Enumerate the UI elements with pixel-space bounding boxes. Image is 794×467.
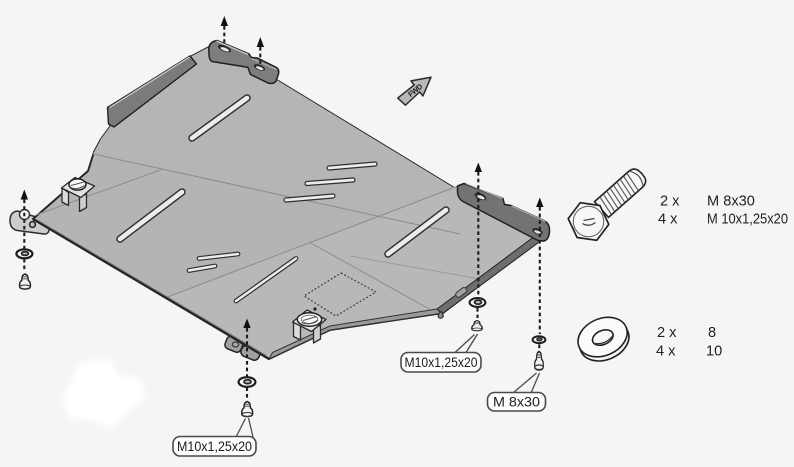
svg-text:8: 8 <box>708 325 716 341</box>
svg-text:4 x: 4 x <box>656 344 676 360</box>
svg-text:4 x: 4 x <box>658 212 678 228</box>
svg-text:M10x1,25x20: M10x1,25x20 <box>177 438 252 454</box>
svg-text:2 x: 2 x <box>657 325 677 341</box>
svg-text:M10x1,25x20: M10x1,25x20 <box>405 354 478 370</box>
svg-text:M 8x30: M 8x30 <box>493 394 540 410</box>
svg-text:M 8x30: M 8x30 <box>707 194 755 210</box>
svg-text:M 10x1,25x20: M 10x1,25x20 <box>707 212 788 228</box>
svg-text:2 x: 2 x <box>660 194 680 210</box>
svg-text:10: 10 <box>706 344 722 360</box>
